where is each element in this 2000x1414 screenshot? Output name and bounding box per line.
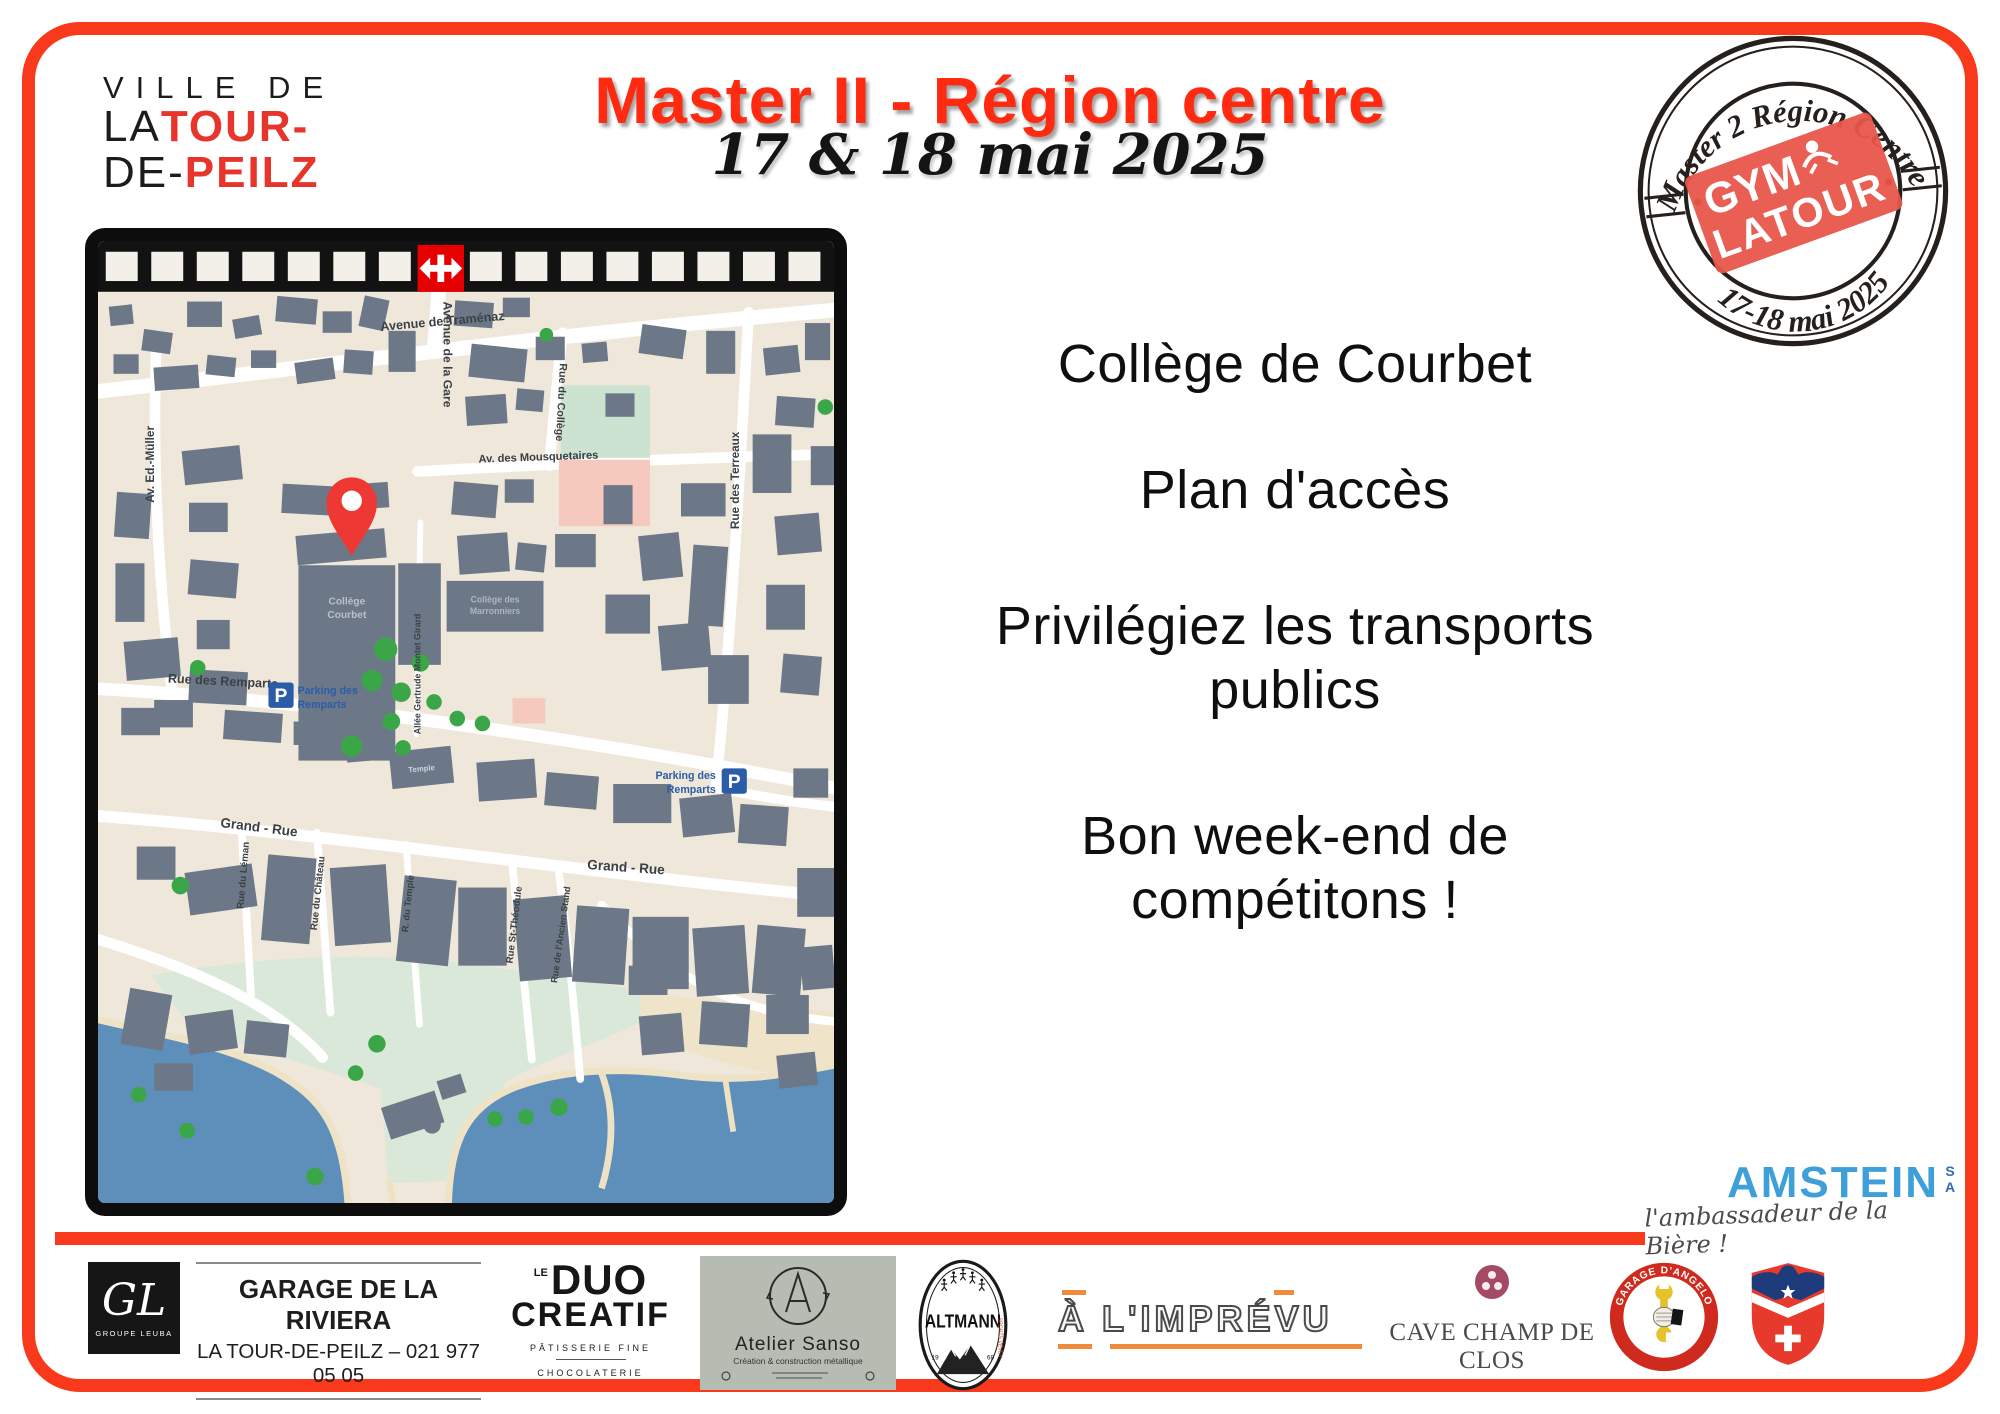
place-label-marronniers-1: Collège des xyxy=(471,594,520,604)
map-building xyxy=(223,710,283,743)
map-building xyxy=(323,311,352,332)
map-building xyxy=(109,304,134,326)
railway-strip xyxy=(98,241,834,292)
railway-tie xyxy=(788,252,820,281)
map-building xyxy=(330,864,391,946)
altmann-sports-vevey: SPORTS VEVEY xyxy=(997,1318,1003,1359)
sponsor-garage-d-angelo: GARAGE D'ANGELO & PRODUIT xyxy=(1606,1258,1722,1376)
garage-riviera-info: LA TOUR-DE-PEILZ – 021 977 05 05 xyxy=(196,1340,481,1388)
map-building xyxy=(708,655,749,704)
venue-name: Collège de Courbet xyxy=(900,332,1690,396)
imprevu-accent-icon xyxy=(1274,1290,1294,1295)
sponsor-shield-logo xyxy=(1744,1256,1832,1370)
parking-remparts-right: P Parking des Remparts xyxy=(656,768,747,795)
event-flyer: VILLE DE LATOUR- DE-PEILZ Master II - Ré… xyxy=(0,0,2000,1414)
railway-tie xyxy=(333,252,365,281)
map-building xyxy=(776,1052,818,1089)
map-building xyxy=(763,345,801,376)
map-building xyxy=(188,559,239,598)
railway-tie xyxy=(379,252,411,281)
parking-left-label-1: Parking des xyxy=(297,685,357,697)
map-building xyxy=(699,1001,750,1047)
city-logo-peilz: PEILZ xyxy=(185,148,320,197)
map-building xyxy=(775,396,816,428)
imprevu-name: À L'IMPRÉVU xyxy=(1058,1298,1333,1339)
city-logo-line3: DE-PEILZ xyxy=(103,150,335,196)
map-building xyxy=(639,324,687,359)
cave-name: CAVE CHAMP DE CLOS xyxy=(1372,1319,1612,1375)
map-building xyxy=(451,481,498,518)
separator-line xyxy=(55,1232,1647,1245)
map-building xyxy=(153,364,199,391)
map-building xyxy=(766,995,809,1034)
header: Master II - Région centre 17 & 18 mai 20… xyxy=(420,62,1560,188)
map-tree-icon xyxy=(391,682,410,702)
transport-advice: Privilégiez les transports publics xyxy=(915,594,1675,722)
street-label-av-ed-muller: Av. Ed.-Müller xyxy=(144,426,157,503)
railway-tie xyxy=(697,252,729,281)
map-building xyxy=(115,563,144,622)
parking-p-icon: P xyxy=(275,685,288,707)
sponsor-groupe-leuba-logo: GL GROUPE LEUBA xyxy=(88,1262,180,1354)
map-building xyxy=(572,905,629,985)
map-tree-icon xyxy=(341,735,362,756)
map-building xyxy=(182,445,243,485)
place-label-college-courbet-2: Courbet xyxy=(327,610,367,621)
railway-tie xyxy=(561,252,593,281)
map-building xyxy=(688,545,728,627)
map-building xyxy=(251,350,276,368)
duo-sub2: CHOCOLATERIE xyxy=(498,1368,683,1378)
map-building xyxy=(515,388,544,412)
divider xyxy=(556,1359,626,1360)
map-tree-icon xyxy=(487,1111,502,1127)
street-label-allee-gertrude-montet-girard: Allée Gertrude Montet Girard xyxy=(413,614,423,735)
railway-tie xyxy=(197,252,229,281)
map-tree-icon xyxy=(374,638,397,661)
map-tree-icon xyxy=(131,1087,146,1103)
map-building xyxy=(121,708,160,735)
map-building xyxy=(185,1009,238,1054)
map-tree-icon xyxy=(426,694,441,710)
map-building xyxy=(154,700,193,727)
cave-emblem-icon xyxy=(1472,1262,1512,1302)
railway-tie xyxy=(288,252,320,281)
map-building xyxy=(811,446,834,485)
street-label-rue-des-terreaux: Rue des Terreaux xyxy=(729,431,742,529)
map-building xyxy=(752,925,806,997)
imprevu-accent-icon xyxy=(1062,1290,1086,1295)
altmann-year-right: 68 xyxy=(987,1354,994,1361)
city-logo: VILLE DE LATOUR- DE-PEILZ xyxy=(103,72,335,196)
map-building xyxy=(753,434,792,493)
divider xyxy=(196,1398,481,1400)
map-building xyxy=(275,296,318,325)
altmann-name: ALTMANN xyxy=(925,1311,1001,1331)
map-building xyxy=(468,344,527,383)
plan-access-label: Plan d'accès xyxy=(900,458,1690,522)
sponsor-cave-champ-de-clos: CAVE CHAMP DE CLOS xyxy=(1372,1262,1612,1375)
railway-tie xyxy=(652,252,684,281)
map-building xyxy=(206,355,237,377)
railway-tie xyxy=(242,252,274,281)
map-building xyxy=(692,925,749,997)
map-building xyxy=(605,393,634,416)
map-building xyxy=(604,485,633,524)
gl-monogram: GL xyxy=(102,1279,166,1323)
amstein-sa: SA xyxy=(1943,1163,1957,1195)
map-building xyxy=(613,784,671,823)
map-building xyxy=(738,804,789,846)
map-building xyxy=(503,298,530,318)
map-building xyxy=(658,622,712,671)
sponsor-altmann: ALTMANN SPORTS VEVEY 19 68 xyxy=(916,1252,1010,1398)
map-tree-icon xyxy=(450,711,465,727)
map-tree-icon xyxy=(383,713,400,731)
map-building xyxy=(389,331,416,372)
college-courbet-building xyxy=(298,565,395,760)
city-logo-la: LA xyxy=(103,102,161,151)
railway-tie xyxy=(515,252,547,281)
map-building xyxy=(555,534,596,567)
map-building xyxy=(780,653,822,695)
map-tree-icon xyxy=(550,1098,567,1116)
railway-tie xyxy=(470,252,502,281)
map-tree-icon xyxy=(818,399,833,415)
map-building xyxy=(197,620,230,649)
map-building xyxy=(638,532,683,581)
map-building xyxy=(154,1063,193,1090)
map-building xyxy=(261,854,317,944)
map-building xyxy=(774,513,822,556)
event-date: 17 & 18 mai 2025 xyxy=(420,122,1560,188)
city-logo-de: DE- xyxy=(103,148,185,197)
map-building xyxy=(244,1020,290,1058)
map-building xyxy=(476,759,537,802)
map-building xyxy=(706,331,735,374)
imprevu-underline-icon xyxy=(1110,1344,1362,1349)
map-building xyxy=(799,945,834,991)
map-building xyxy=(458,888,506,966)
map-tree-icon xyxy=(306,1168,323,1186)
map-building xyxy=(766,585,805,630)
map-tree-icon xyxy=(540,328,554,342)
railway-tie xyxy=(743,252,775,281)
altmann-year-left: 19 xyxy=(932,1354,939,1361)
parking-left-label-2: Remparts xyxy=(297,699,346,711)
city-logo-line1: VILLE DE xyxy=(103,72,335,104)
info-text: Collège de Courbet Plan d'accès Privilég… xyxy=(900,332,1690,932)
imprevu-underline-icon xyxy=(1058,1344,1092,1349)
parking-right-label-1: Parking des xyxy=(656,770,716,782)
map-building xyxy=(343,349,374,374)
city-logo-tour: TOUR- xyxy=(161,102,310,151)
parking-remparts-left: P Parking des Remparts xyxy=(268,682,357,710)
garage-riviera-name: GARAGE DE LA RIVIERA xyxy=(196,1274,481,1336)
map-building xyxy=(544,772,599,810)
sponsor-amstein: AMSTEINSA l'ambassadeur de la Bière ! xyxy=(1645,1168,1963,1250)
map-tree-icon xyxy=(172,877,189,895)
sanso-subtitle: Création & construction métallique xyxy=(733,1356,863,1366)
map-tree-icon xyxy=(368,1035,385,1053)
map-building xyxy=(457,532,510,575)
duo-sub1: PÂTISSERIE FINE xyxy=(498,1343,683,1353)
map-tree-icon xyxy=(348,1065,363,1081)
sponsor-garage-riviera: GARAGE DE LA RIVIERA LA TOUR-DE-PEILZ – … xyxy=(196,1262,481,1400)
city-logo-line2: LATOUR- xyxy=(103,104,335,150)
map-building xyxy=(679,793,735,837)
sponsor-a-l-imprevu: À L'IMPRÉVU xyxy=(1058,1298,1378,1340)
map-tree-icon xyxy=(475,716,490,732)
map-building xyxy=(505,479,534,502)
railway-tie xyxy=(151,252,183,281)
map-building xyxy=(465,394,508,426)
map-tree-icon xyxy=(395,740,410,756)
railway-tie xyxy=(106,252,138,281)
railway-tie xyxy=(606,252,638,281)
parking-p-icon: P xyxy=(728,771,741,793)
map-tree-icon xyxy=(518,1109,533,1125)
sponsor-atelier-sanso: Atelier Sanso Création & construction mé… xyxy=(700,1256,896,1390)
map-building xyxy=(515,542,547,572)
map-building xyxy=(581,342,608,364)
map-building xyxy=(141,329,173,354)
parking-right-label-2: Remparts xyxy=(667,784,716,796)
map-building xyxy=(137,847,176,880)
sanso-name: Atelier Sanso xyxy=(735,1334,861,1355)
map-building xyxy=(605,595,650,634)
event-stamp: Master 2 Région Centre 17-18 mai 2025 GY… xyxy=(1612,10,1975,373)
duo-le: LE xyxy=(534,1267,548,1279)
sponsor-duo-creatif: LEDUO CREATIF PÂTISSERIE FINE CHOCOLATER… xyxy=(498,1256,683,1378)
gl-group-label: GROUPE LEUBA xyxy=(95,1329,172,1338)
map-building xyxy=(805,323,830,360)
map-building xyxy=(187,302,222,327)
map-building xyxy=(113,354,138,374)
map-building xyxy=(797,868,834,917)
amstein-tagline: l'ambassadeur de la Bière ! xyxy=(1644,1194,1958,1261)
map-building xyxy=(681,483,726,516)
map-building xyxy=(793,768,828,797)
sbb-station-icon xyxy=(418,245,464,292)
duo-creatif-text: CREATIF xyxy=(498,1296,683,1335)
weekend-wish: Bon week-end de compétitons ! xyxy=(1015,804,1575,932)
place-label-marronniers-2: Marronniers xyxy=(470,606,520,616)
map-building xyxy=(189,503,228,532)
map-tree-icon xyxy=(179,1123,194,1139)
map-building xyxy=(639,1013,685,1056)
place-label-college-courbet-1: Collège xyxy=(329,596,366,607)
access-map: Avenue de la Gare Avenue de Traménaz Rue… xyxy=(85,228,847,1216)
map-building xyxy=(629,966,668,995)
divider xyxy=(196,1262,481,1264)
map-tree-icon xyxy=(361,670,382,691)
